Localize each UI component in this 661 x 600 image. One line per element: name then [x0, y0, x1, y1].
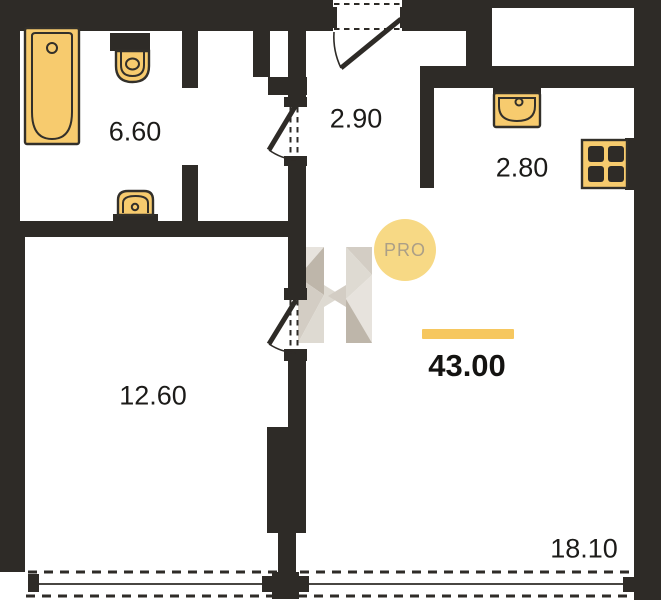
kitchen-area-label: 2.80: [496, 153, 549, 184]
bathroom-area-label: 6.60: [109, 117, 162, 148]
total-area-label: 43.00: [428, 348, 506, 384]
living-room-area-label: 18.10: [550, 534, 618, 565]
room-labels: 6.60 2.90 2.80 12.60 18.10 43.00: [0, 0, 661, 600]
total-area-accent-bar: [422, 329, 514, 339]
floor-plan: PRO: [0, 0, 661, 600]
hallway-area-label: 2.90: [330, 104, 383, 135]
bedroom-area-label: 12.60: [119, 381, 187, 412]
